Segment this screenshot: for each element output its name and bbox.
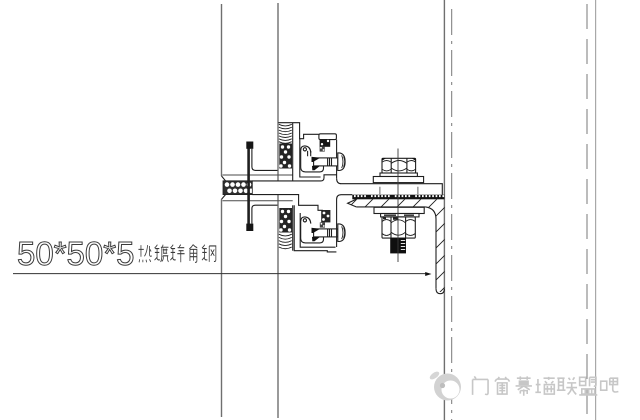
svg-text:50*50*5: 50*50*5	[17, 235, 134, 272]
